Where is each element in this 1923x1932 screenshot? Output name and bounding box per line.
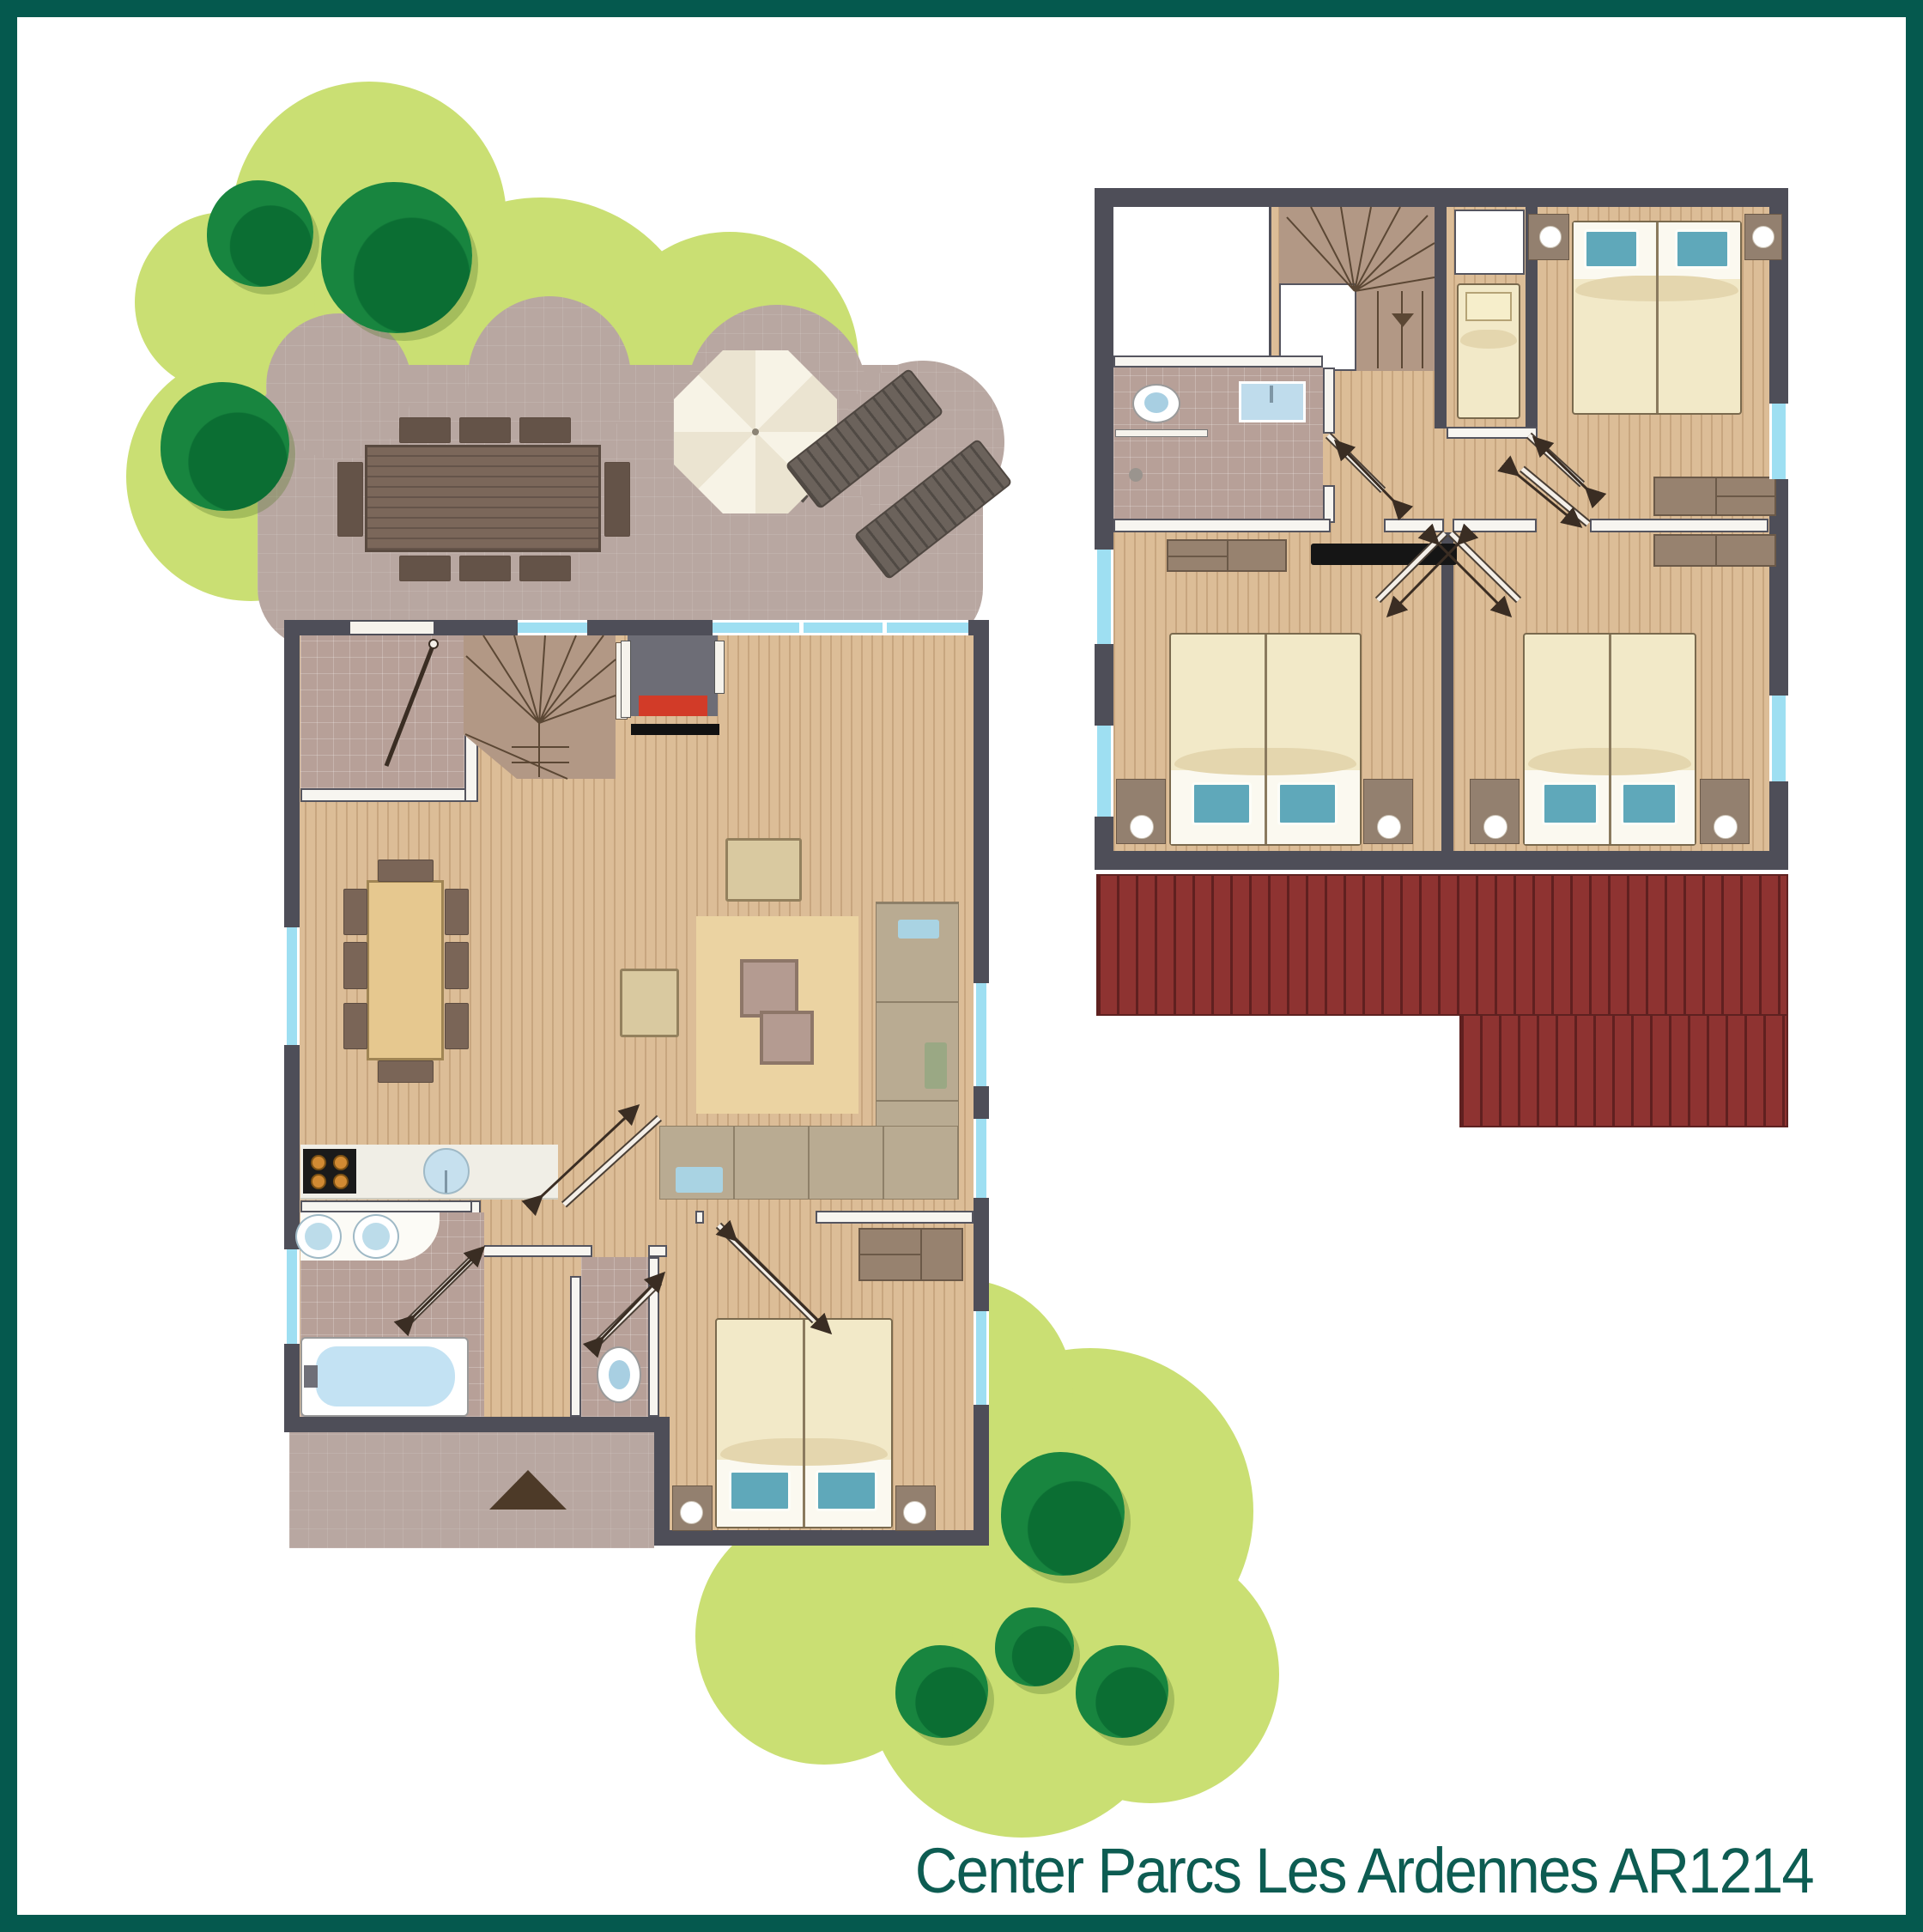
tree (895, 1645, 988, 1738)
floor-plan-image: Center Parcs Les Ardennes AR1214 (0, 0, 1923, 1932)
hall-toilet-wall (481, 1245, 592, 1257)
window (1095, 550, 1113, 644)
window (974, 1311, 989, 1405)
window (1769, 404, 1788, 479)
double-bed (1169, 633, 1362, 846)
armchair (620, 969, 679, 1037)
bedside-lamp-icon (1377, 815, 1401, 839)
page-title: Center Parcs Les Ardennes AR1214 (915, 1834, 1813, 1907)
bathtub-tap-icon (304, 1365, 318, 1388)
bedside-lamp-icon (1483, 815, 1507, 839)
outdoor-chair (399, 417, 451, 443)
window (1769, 696, 1788, 781)
bathroom-shelf (1115, 429, 1208, 437)
kitchen-hob (303, 1149, 356, 1194)
entrance-hall-floor (300, 635, 465, 788)
bathroom-wall (1113, 355, 1323, 368)
window (284, 927, 300, 1045)
tree (207, 180, 313, 287)
outdoor-bench (337, 462, 363, 537)
bedside-lamp-icon (1130, 815, 1154, 839)
living-bedroom-wall (695, 1211, 704, 1224)
tree (321, 182, 472, 333)
window-mullion (883, 620, 887, 635)
outdoor-chair (519, 417, 571, 443)
window (974, 1119, 989, 1198)
dining-chair (343, 942, 367, 989)
dining-chair (445, 1003, 469, 1049)
tree (1076, 1645, 1168, 1738)
dining-chair (343, 889, 367, 935)
wardrobe (858, 1228, 963, 1281)
dresser (1167, 539, 1287, 572)
tree (995, 1607, 1074, 1686)
outdoor-chair (399, 556, 451, 581)
door-opening (350, 622, 434, 634)
sofa-cushion (898, 920, 939, 939)
toilet-bowl-icon (1144, 392, 1168, 413)
window (518, 620, 587, 635)
kitchen-wall (300, 1200, 479, 1212)
bedroom-wall (1447, 427, 1538, 439)
bedside-lamp-icon (1752, 226, 1774, 248)
pillow (816, 1470, 877, 1511)
bedside-lamp-icon (1714, 815, 1738, 839)
landing-wall (1590, 519, 1768, 532)
outdoor-chair (459, 417, 511, 443)
dining-chair (445, 889, 469, 935)
bedside-lamp-icon (903, 1501, 926, 1524)
fireplace-fire (639, 696, 707, 716)
fireplace-hearth (631, 724, 719, 735)
dining-chair (343, 1003, 367, 1049)
dining-chair (378, 860, 434, 882)
toilet-wall (570, 1276, 581, 1417)
dining-table (367, 880, 444, 1060)
parasol-hub-icon (752, 428, 759, 435)
first-floor-plan (1095, 188, 1788, 870)
pillow (1277, 782, 1338, 825)
fireplace-side (714, 641, 725, 694)
hall-wall (300, 788, 470, 802)
wardrobe (1653, 477, 1776, 516)
pillow (1465, 292, 1512, 321)
sofa-cushion (925, 1042, 947, 1089)
ground-floor-plan (284, 620, 989, 1546)
sofa (659, 1126, 959, 1200)
coffee-table (760, 1011, 814, 1065)
living-bedroom-wall (816, 1211, 974, 1224)
hob-burner-icon (311, 1155, 326, 1170)
hob-burner-icon (311, 1174, 326, 1189)
outdoor-bench (604, 462, 630, 537)
washbasin-water-icon (305, 1223, 332, 1250)
landing-wall (1453, 519, 1537, 532)
washbasin-tap-icon (1270, 386, 1273, 403)
bedside-lamp-icon (680, 1501, 703, 1524)
kitchen-tap-icon (445, 1170, 447, 1193)
tv (1311, 544, 1457, 565)
wardrobe (1653, 534, 1776, 567)
void (1113, 207, 1271, 362)
hob-burner-icon (333, 1155, 349, 1170)
pillow (729, 1470, 791, 1511)
pillow (1192, 782, 1252, 825)
pillow (1621, 782, 1677, 825)
outdoor-chair (459, 556, 511, 581)
dining-chair (445, 942, 469, 989)
sofa-cushion (676, 1167, 723, 1193)
pillow (1542, 782, 1598, 825)
window (1095, 726, 1113, 817)
landing-wall (1113, 519, 1331, 532)
dining-chair (378, 1060, 434, 1083)
closet (1454, 210, 1525, 275)
roof-section (1459, 1014, 1788, 1127)
double-bed (715, 1318, 893, 1528)
bathtub-basin (316, 1346, 455, 1406)
armchair (725, 838, 802, 902)
hob-burner-icon (333, 1174, 349, 1189)
double-bed (1572, 221, 1742, 415)
bedside-lamp-icon (1539, 226, 1562, 248)
window (974, 983, 989, 1086)
stair-bedroom-wall (1435, 207, 1447, 428)
roof-section (1096, 874, 1788, 1016)
landing-wall (1384, 519, 1444, 532)
pillow (1584, 229, 1639, 269)
toilet-bowl-icon (609, 1360, 630, 1389)
tree (1001, 1452, 1125, 1576)
coffee-table (740, 959, 798, 1018)
bathroom-wall (1323, 368, 1335, 434)
double-bed (1523, 633, 1696, 846)
toilet-wall (648, 1257, 659, 1417)
single-bed (1457, 283, 1520, 419)
outdoor-chair (519, 556, 571, 581)
bedroom-divider-wall (1441, 532, 1453, 851)
window (713, 620, 968, 635)
fireplace-side (621, 641, 631, 718)
outdoor-dining-table (365, 445, 601, 552)
pillow (1675, 229, 1730, 269)
window (284, 1249, 300, 1344)
hall-toilet-wall (648, 1245, 667, 1257)
washbasin-water-icon (362, 1223, 390, 1250)
bathroom-wall (1323, 485, 1335, 523)
tree (161, 382, 289, 511)
floor-drain-icon (1129, 468, 1143, 482)
window-mullion (799, 620, 804, 635)
